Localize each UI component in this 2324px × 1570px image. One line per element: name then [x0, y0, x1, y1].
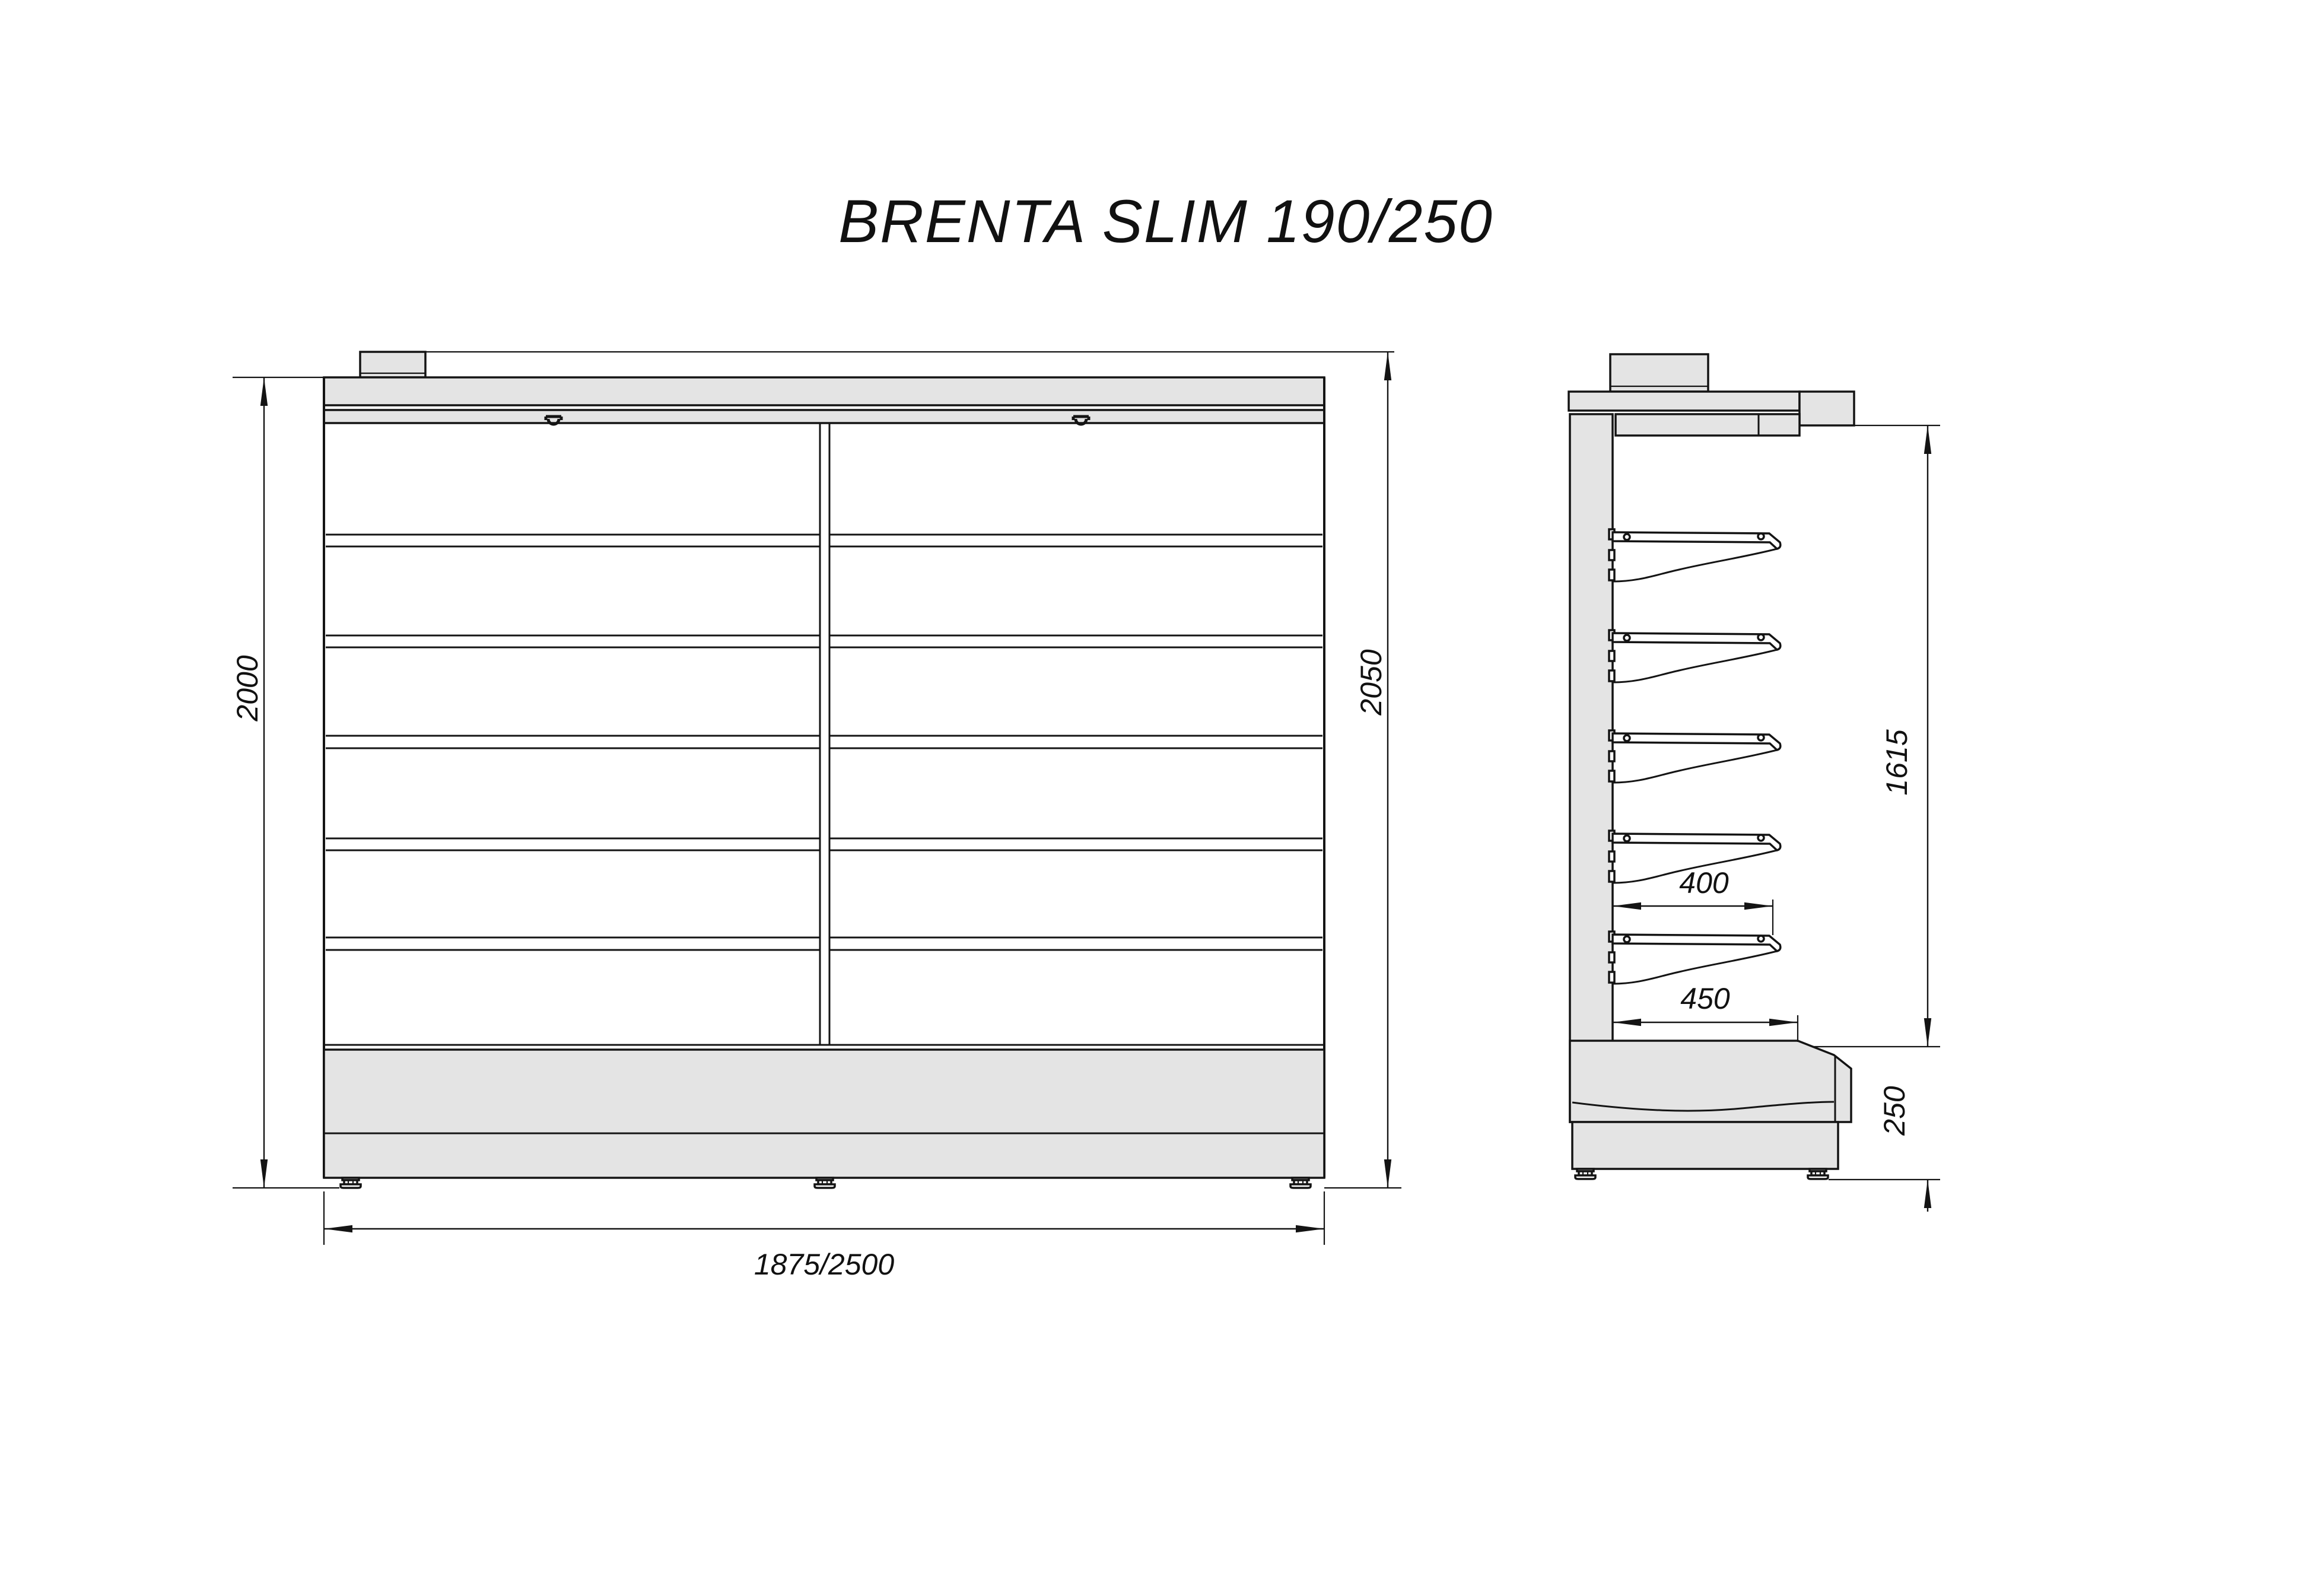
front-view	[324, 352, 1324, 1188]
leveling-foot	[1290, 1178, 1311, 1188]
shelf-bracket	[1609, 932, 1781, 984]
shelf-bracket	[1609, 529, 1781, 581]
side-canopy-upper	[1569, 392, 1800, 411]
drawing-title: BRENTA SLIM 190/250	[838, 187, 1493, 255]
side-view	[1569, 354, 1854, 1179]
dim-text-base-height: 250	[1878, 1086, 1911, 1136]
technical-drawing: BRENTA SLIM 190/250	[0, 0, 2324, 1570]
canopy-band-upper	[324, 377, 1324, 405]
dim-text-height-left: 2000	[231, 655, 264, 722]
ext-lines-width	[324, 1191, 1324, 1245]
leveling-foot	[341, 1178, 361, 1188]
dim-text-width: 1875/2500	[754, 1248, 895, 1281]
shelf-bracket	[1609, 730, 1781, 783]
shelf-lines-left	[326, 535, 820, 950]
dim-text-shelf-depth: 400	[1679, 866, 1729, 900]
side-canopy-front-block	[1800, 392, 1854, 425]
side-plinth	[1572, 1122, 1838, 1169]
shelf-bracket	[1609, 630, 1781, 682]
leveling-foot	[815, 1178, 835, 1188]
dim-text-upper-height: 1615	[1880, 729, 1913, 795]
base-front-panel	[324, 1050, 1324, 1178]
leveling-foot	[1808, 1169, 1828, 1179]
canopy-band-lower	[324, 410, 1324, 423]
dim-text-base-depth: 450	[1680, 982, 1730, 1015]
center-divider	[820, 423, 829, 1045]
side-canopy-lower	[1616, 414, 1800, 436]
leveling-foot	[1575, 1169, 1595, 1179]
drawing-page: BRENTA SLIM 190/250	[0, 0, 2324, 1570]
shelf-lines-right	[829, 535, 1322, 950]
dim-text-height-right: 2050	[1355, 649, 1388, 716]
back-panel	[1570, 414, 1613, 1122]
